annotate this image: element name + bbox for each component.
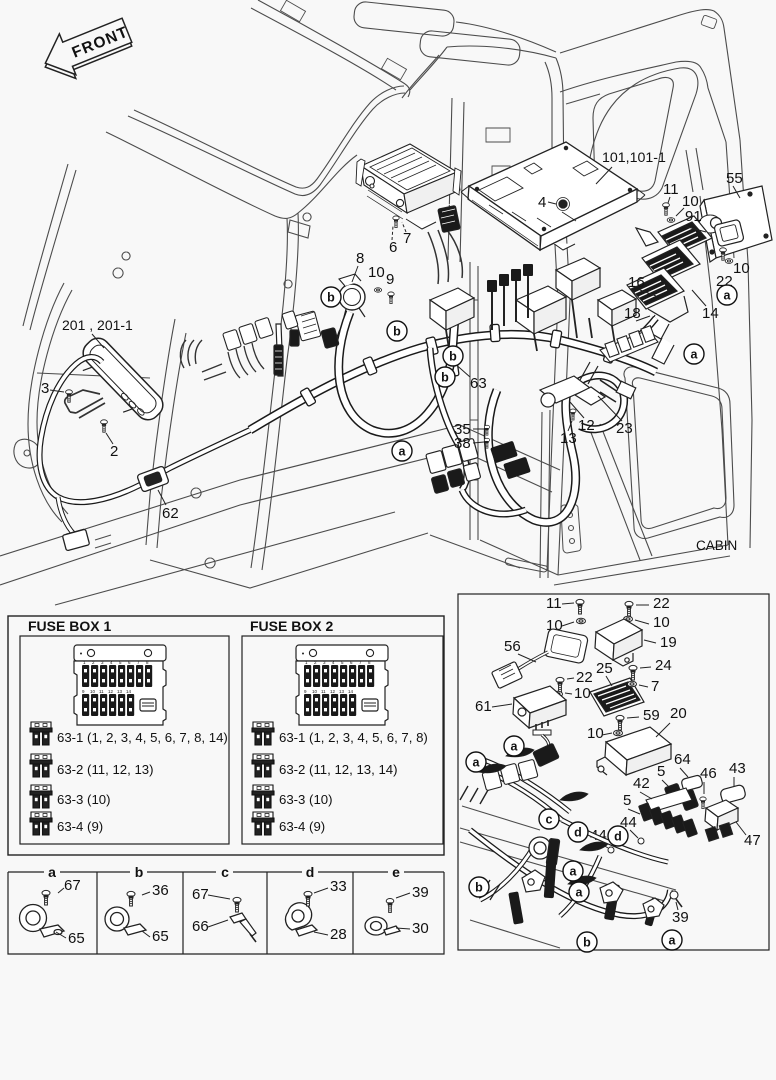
svg-text:d: d — [574, 826, 582, 840]
svg-text:d: d — [306, 864, 315, 880]
svg-text:a: a — [724, 289, 732, 303]
svg-text:12: 12 — [578, 417, 595, 434]
svg-text:7: 7 — [403, 230, 411, 247]
svg-text:28: 28 — [330, 926, 347, 943]
svg-text:2: 2 — [110, 443, 118, 460]
svg-text:63-1 (1, 2, 3, 4, 5, 6, 7, 8): 63-1 (1, 2, 3, 4, 5, 6, 7, 8) — [279, 730, 428, 745]
svg-text:a: a — [570, 865, 578, 879]
svg-text:4: 4 — [538, 194, 546, 211]
svg-text:CABIN: CABIN — [696, 538, 737, 553]
svg-text:a: a — [511, 740, 519, 754]
svg-text:b: b — [583, 936, 591, 950]
svg-text:11: 11 — [546, 595, 562, 612]
svg-text:91: 91 — [685, 208, 702, 225]
svg-text:a: a — [399, 445, 407, 459]
svg-text:e: e — [392, 864, 400, 880]
svg-text:24: 24 — [655, 657, 672, 674]
svg-text:a: a — [48, 864, 56, 880]
svg-text:62: 62 — [162, 505, 179, 522]
svg-text:a: a — [576, 886, 584, 900]
svg-text:5: 5 — [623, 792, 631, 809]
svg-text:22: 22 — [653, 595, 670, 612]
svg-text:65: 65 — [152, 928, 169, 945]
svg-text:b: b — [327, 291, 335, 305]
svg-text:66: 66 — [192, 918, 209, 935]
svg-text:FUSE BOX 2: FUSE BOX 2 — [250, 618, 333, 634]
svg-text:20: 20 — [670, 705, 687, 722]
svg-text:36: 36 — [152, 882, 169, 899]
svg-text:38: 38 — [454, 435, 471, 452]
svg-text:b: b — [475, 881, 483, 895]
svg-text:6: 6 — [389, 239, 397, 256]
svg-text:63-4 (9): 63-4 (9) — [279, 819, 325, 834]
svg-text:b: b — [449, 350, 457, 364]
svg-text:c: c — [546, 813, 553, 827]
svg-text:25: 25 — [596, 660, 613, 677]
svg-text:63-1 (1, 2, 3, 4, 5, 6, 7, 8,: 63-1 (1, 2, 3, 4, 5, 6, 7, 8, 14) — [57, 730, 228, 745]
svg-text:10: 10 — [587, 725, 604, 742]
svg-text:67: 67 — [64, 877, 81, 894]
svg-text:46: 46 — [700, 765, 717, 782]
svg-text:c: c — [221, 864, 229, 880]
svg-text:9: 9 — [386, 271, 394, 288]
svg-text:47: 47 — [744, 832, 761, 849]
svg-text:33: 33 — [330, 878, 347, 895]
svg-text:10: 10 — [653, 614, 670, 631]
svg-text:65: 65 — [68, 930, 85, 947]
svg-text:42: 42 — [633, 775, 650, 792]
svg-text:a: a — [669, 934, 677, 948]
svg-text:67: 67 — [192, 886, 209, 903]
svg-text:5: 5 — [657, 763, 665, 780]
svg-text:63-3 (10): 63-3 (10) — [57, 792, 111, 807]
svg-text:7: 7 — [651, 678, 659, 695]
svg-text:a: a — [691, 348, 699, 362]
svg-text:63-2 (11, 12, 13): 63-2 (11, 12, 13) — [57, 762, 154, 777]
svg-text:63-3 (10): 63-3 (10) — [279, 792, 333, 807]
svg-text:b: b — [393, 325, 401, 339]
svg-text:13: 13 — [560, 430, 577, 447]
svg-text:10: 10 — [733, 260, 750, 277]
svg-text:8: 8 — [356, 250, 364, 267]
svg-text:61: 61 — [475, 698, 492, 715]
svg-text:59: 59 — [643, 707, 660, 724]
svg-text:16: 16 — [628, 274, 645, 291]
svg-text:b: b — [441, 371, 449, 385]
svg-text:39: 39 — [412, 884, 429, 901]
svg-text:10: 10 — [574, 685, 591, 702]
svg-text:10: 10 — [368, 264, 385, 281]
svg-text:64: 64 — [674, 751, 691, 768]
svg-text:18: 18 — [624, 305, 641, 322]
svg-text:101,101-1: 101,101-1 — [602, 150, 666, 166]
svg-text:3: 3 — [41, 380, 49, 397]
svg-text:14: 14 — [702, 305, 719, 322]
svg-text:63-4 (9): 63-4 (9) — [57, 819, 103, 834]
svg-text:b: b — [135, 864, 144, 880]
svg-text:23: 23 — [616, 420, 633, 437]
svg-text:201 , 201-1: 201 , 201-1 — [62, 317, 133, 333]
svg-text:FUSE BOX 1: FUSE BOX 1 — [28, 618, 111, 634]
svg-text:43: 43 — [729, 760, 746, 777]
svg-text:39: 39 — [672, 909, 689, 926]
svg-text:19: 19 — [660, 634, 677, 651]
svg-text:d: d — [614, 830, 622, 844]
svg-text:11: 11 — [663, 181, 679, 198]
svg-text:22: 22 — [576, 669, 593, 686]
svg-text:63-2 (11, 12, 13, 14): 63-2 (11, 12, 13, 14) — [279, 762, 398, 777]
svg-text:30: 30 — [412, 920, 429, 937]
svg-text:56: 56 — [504, 638, 521, 655]
svg-text:a: a — [473, 756, 481, 770]
svg-text:63: 63 — [470, 375, 487, 392]
svg-text:55: 55 — [726, 170, 743, 187]
